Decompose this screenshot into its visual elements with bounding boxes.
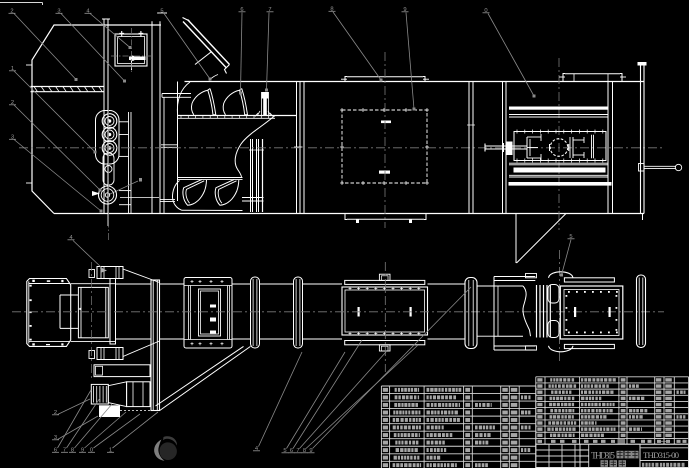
svg-text:THD315: THD315	[591, 452, 615, 462]
svg-text:THD315-00: THD315-00	[643, 450, 680, 460]
